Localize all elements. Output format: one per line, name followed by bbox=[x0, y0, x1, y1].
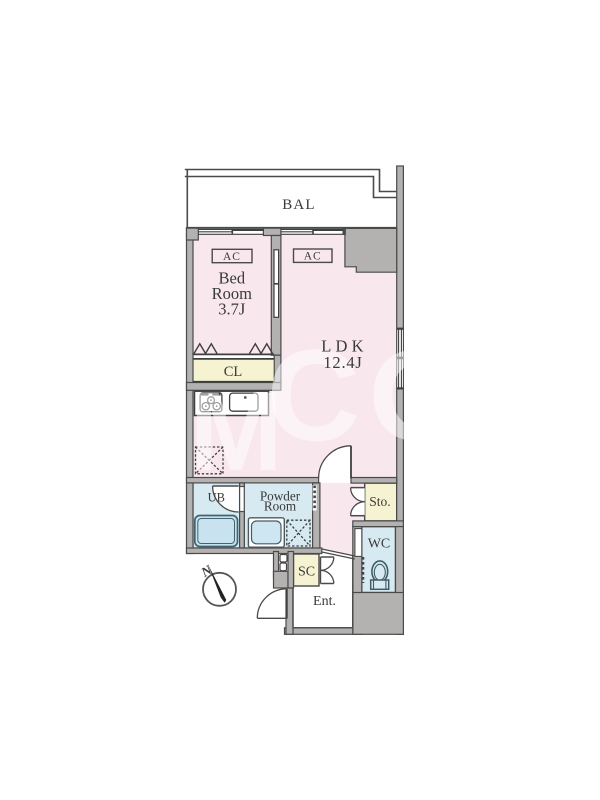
svg-text:CO: CO bbox=[267, 322, 478, 468]
svg-text:WC: WC bbox=[368, 537, 391, 552]
svg-text:SC: SC bbox=[298, 565, 315, 580]
svg-text:3.7J: 3.7J bbox=[218, 300, 246, 319]
svg-text:AC: AC bbox=[304, 251, 322, 263]
svg-text:Sto.: Sto. bbox=[369, 494, 390, 509]
svg-text:Ent.: Ent. bbox=[313, 594, 336, 609]
svg-text:12.4J: 12.4J bbox=[323, 353, 362, 372]
svg-text:CL: CL bbox=[224, 364, 243, 380]
svg-text:BAL: BAL bbox=[282, 197, 316, 213]
svg-text:Room: Room bbox=[264, 499, 297, 514]
svg-text:AC: AC bbox=[223, 251, 241, 263]
svg-text:UB: UB bbox=[208, 491, 225, 505]
